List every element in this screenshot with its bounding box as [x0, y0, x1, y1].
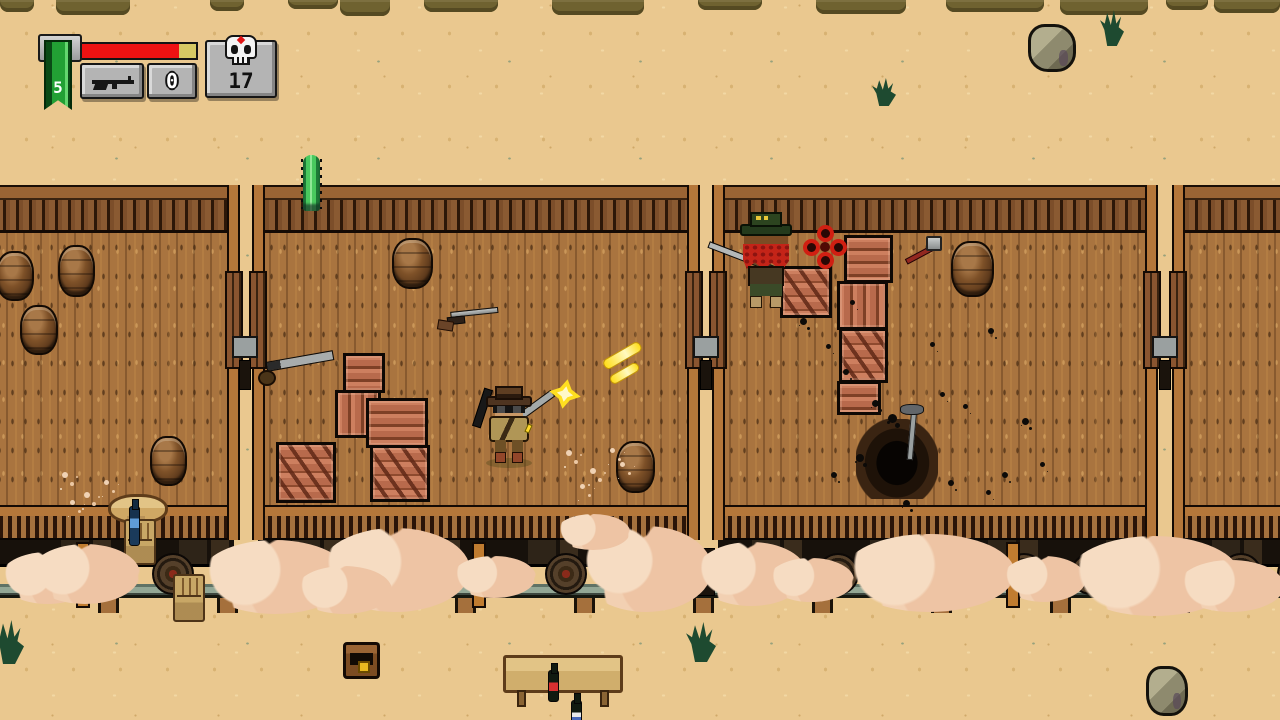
hud: 5 0 17: [34, 32, 294, 122]
skull-icon: [225, 35, 257, 59]
health-bar: [78, 42, 198, 60]
pickaxe: [896, 402, 928, 464]
floor-debris: [70, 500, 75, 505]
scrub-ridge: [946, 0, 1044, 12]
ammo-panel: 0: [147, 63, 197, 99]
blood-splat: [1002, 472, 1008, 478]
blood-splat: [948, 480, 954, 486]
scrub-ridge: [340, 0, 390, 16]
car-top-wall: [1172, 200, 1280, 233]
train-car: [0, 185, 240, 600]
car-coupler: [239, 360, 251, 390]
bandit-hat-badge: [764, 216, 768, 220]
scrub-ridge: [1214, 0, 1280, 13]
skull-eye: [231, 45, 238, 54]
floor-debris: [104, 480, 109, 485]
blood-splat: [1022, 418, 1029, 425]
cactus-sprout: [872, 78, 896, 106]
pickaxe-handle: [907, 410, 917, 460]
barrel: [392, 238, 433, 289]
player-shadow: [486, 458, 532, 468]
scrub-ridge: [1060, 0, 1148, 15]
skull-gem: [237, 36, 245, 44]
car-top-beam: [0, 185, 240, 200]
scrub-ridge: [698, 0, 762, 10]
scrub-ridge: [288, 0, 338, 9]
dust-cloud: [1178, 560, 1280, 612]
player-boot: [495, 452, 506, 463]
player-boot: [512, 452, 523, 463]
crate: [370, 445, 430, 502]
blood-splat: [940, 392, 945, 397]
scrub-ridge: [56, 0, 130, 15]
car-top-beam: [712, 185, 1158, 200]
scrub-ridge: [0, 0, 34, 12]
rock: [1146, 666, 1188, 716]
barrel: [951, 241, 994, 297]
car-bottom-wall: [1172, 516, 1280, 540]
floor-debris: [590, 468, 596, 474]
bottle: [548, 670, 559, 702]
rifle-icon-sight: [128, 76, 131, 80]
cactus: [303, 155, 320, 211]
cactus-sprout: [1100, 10, 1124, 46]
reticle-ring: [803, 239, 820, 256]
blood-splat: [843, 369, 849, 375]
game-viewport[interactable]: 5 0 17: [0, 0, 1280, 720]
train-car: [1172, 185, 1280, 600]
crate: [844, 235, 893, 283]
bottle: [129, 506, 140, 546]
car-coupler: [700, 360, 712, 390]
enemy-bandit: [734, 206, 798, 312]
blood-splat: [872, 400, 879, 407]
car-bottom-beam: [1172, 505, 1280, 516]
floor-debris: [566, 450, 572, 456]
barrel: [616, 441, 655, 493]
blood-splat: [963, 404, 968, 409]
bandit-boot: [750, 296, 762, 308]
bottle: [571, 700, 582, 720]
player-character: [476, 382, 548, 470]
target-reticle: [803, 225, 847, 269]
bottle-banner-icon: 5: [44, 40, 72, 110]
kill-count: 17: [207, 70, 275, 92]
skull-eye: [244, 45, 251, 54]
scrub-ridge: [1166, 0, 1208, 10]
axe-head: [926, 236, 942, 251]
crate: [837, 381, 881, 415]
cactus-sprout: [686, 622, 716, 662]
reticle-ring: [830, 239, 847, 256]
barrel: [20, 305, 58, 355]
car-top-wall: [0, 200, 240, 233]
dropped-axe: [902, 234, 944, 274]
pickaxe-head: [900, 404, 924, 415]
crate: [366, 398, 428, 448]
blood-splat: [930, 342, 935, 347]
car-bottom-beam: [252, 505, 700, 516]
floor-debris: [84, 492, 90, 498]
skull-jaw: [232, 57, 250, 65]
scrub-ridge: [210, 0, 244, 11]
barrel: [58, 245, 95, 297]
floor-debris: [62, 472, 68, 478]
floor-debris: [580, 484, 585, 489]
scrub-ridge: [816, 0, 906, 14]
blood-splat: [856, 454, 864, 462]
car-bottom-beam: [712, 505, 1158, 516]
crate: [837, 281, 888, 330]
crate: [343, 353, 385, 393]
player-legs: [495, 440, 523, 452]
scrub-ridge: [424, 0, 498, 12]
dust-cloud: [452, 556, 536, 598]
reticle-ring: [817, 252, 834, 269]
rifle-icon: [90, 75, 138, 91]
kill-counter-panel: 17: [205, 40, 277, 98]
blood-splat: [831, 472, 837, 478]
player-glasses-icon: [493, 406, 525, 413]
car-coupling-plate: [693, 336, 719, 358]
rifle-icon-magazine: [112, 84, 117, 89]
scrub-ridge: [552, 0, 644, 15]
player-torso: [489, 416, 529, 442]
treasure-chest: [343, 642, 380, 679]
long-table: [503, 655, 623, 693]
rock: [1028, 24, 1076, 72]
bandit-torso: [748, 266, 784, 286]
player-hat-crown: [495, 386, 523, 400]
blood-splat: [800, 318, 807, 325]
dust-cloud: [843, 534, 1015, 612]
blood-splat: [988, 328, 994, 334]
cactus-sprout: [0, 620, 24, 664]
bandit-boot: [770, 296, 782, 308]
dust-cloud: [296, 566, 392, 614]
reticle-ring: [817, 225, 834, 242]
shotgun-stock: [437, 319, 454, 331]
ammo-count: 0: [166, 69, 178, 93]
blood-splat: [903, 500, 910, 507]
dropped-hat: [258, 370, 276, 386]
floor-debris: [620, 462, 625, 467]
blood-splat: [1040, 462, 1045, 467]
bottle-count: 5: [46, 80, 70, 96]
dust-cloud: [768, 558, 854, 602]
car-floor: [0, 233, 240, 505]
car-floor: [1172, 233, 1280, 505]
dust-cloud: [30, 544, 140, 604]
blood-splat: [850, 300, 855, 305]
weapon-panel: [80, 63, 144, 99]
car-coupling-plate: [1152, 336, 1178, 358]
car-coupling-plate: [232, 336, 258, 358]
car-coupler: [1159, 360, 1171, 390]
reticle-core: [820, 242, 830, 252]
health-fill: [80, 44, 179, 58]
blood-splat: [986, 490, 991, 495]
crate: [276, 442, 336, 503]
dust-cloud: [556, 514, 630, 550]
floor-debris: [610, 448, 615, 453]
barrel: [150, 436, 187, 486]
blood-splat: [826, 344, 831, 349]
car-top-beam: [1172, 185, 1280, 200]
bandit-hat-badge: [756, 216, 761, 220]
barrel: [0, 251, 34, 301]
bandit-pants: [750, 284, 782, 296]
